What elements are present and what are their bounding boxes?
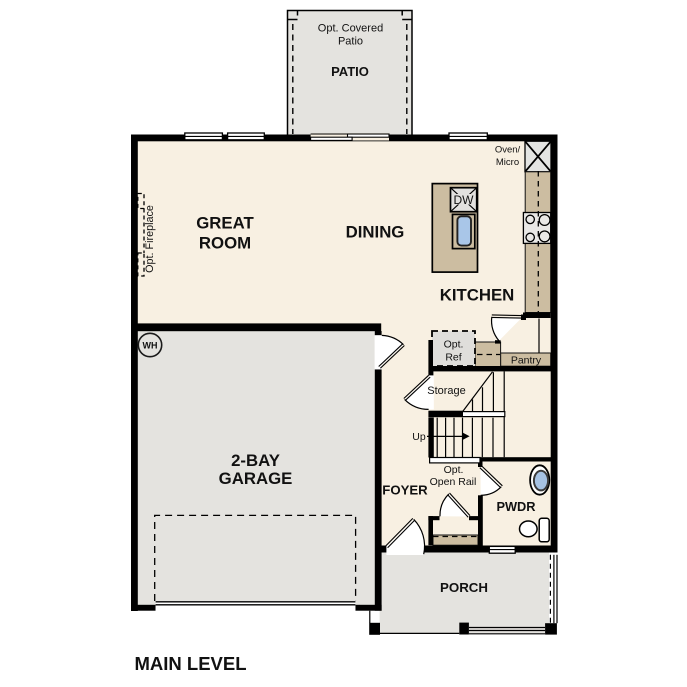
- svg-text:DINING: DINING: [346, 223, 405, 242]
- svg-text:FOYER: FOYER: [382, 483, 428, 498]
- svg-text:GREAT: GREAT: [196, 213, 254, 232]
- svg-text:GARAGE: GARAGE: [219, 469, 293, 488]
- svg-text:Opt. Covered: Opt. Covered: [318, 23, 383, 35]
- svg-text:Storage: Storage: [427, 385, 466, 397]
- svg-text:Up: Up: [412, 431, 426, 443]
- svg-text:WH: WH: [143, 340, 158, 350]
- svg-text:Opt.: Opt.: [444, 464, 464, 476]
- svg-text:Opt.: Opt.: [444, 339, 464, 351]
- svg-text:Oven/: Oven/: [495, 144, 521, 155]
- svg-text:2-BAY: 2-BAY: [231, 451, 280, 470]
- svg-text:Patio: Patio: [338, 36, 363, 48]
- svg-text:PORCH: PORCH: [440, 580, 488, 595]
- svg-text:Pantry: Pantry: [511, 355, 542, 367]
- svg-text:DW: DW: [454, 193, 475, 207]
- svg-text:MAIN LEVEL: MAIN LEVEL: [135, 653, 247, 674]
- svg-text:PATIO: PATIO: [331, 64, 369, 79]
- svg-text:ROOM: ROOM: [199, 234, 251, 253]
- svg-text:Opt. Fireplace: Opt. Fireplace: [144, 205, 156, 273]
- svg-text:PWDR: PWDR: [496, 499, 535, 514]
- svg-text:Open Rail: Open Rail: [430, 476, 477, 488]
- svg-text:Ref: Ref: [445, 352, 461, 364]
- svg-text:KITCHEN: KITCHEN: [440, 286, 515, 305]
- svg-text:Micro: Micro: [496, 157, 519, 168]
